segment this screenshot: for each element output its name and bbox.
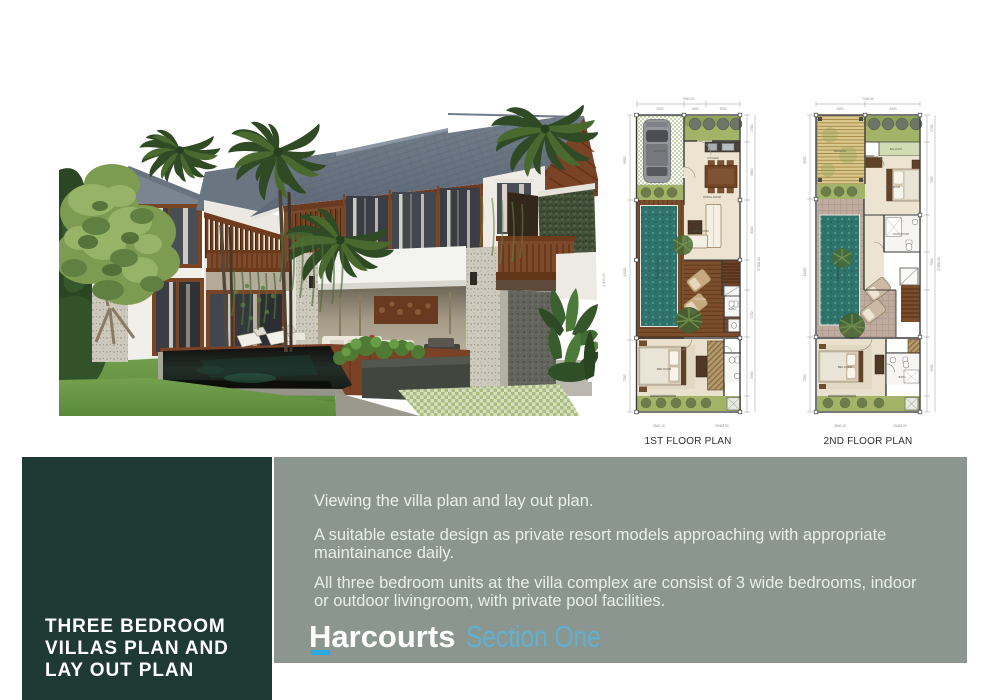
svg-text:SWIMMING POOL: SWIMMING POOL <box>656 257 660 279</box>
svg-text:2700: 2700 <box>930 124 934 131</box>
svg-text:29453.90: 29453.90 <box>715 424 729 428</box>
svg-text:5900: 5900 <box>750 371 754 378</box>
svg-text:TERRACE: TERRACE <box>694 297 707 301</box>
svg-text:3000: 3000 <box>656 107 663 111</box>
svg-text:7300: 7300 <box>930 176 934 183</box>
svg-text:BALCONY: BALCONY <box>890 147 903 151</box>
svg-text:7000.00: 7000.00 <box>862 97 874 101</box>
svg-text:2700: 2700 <box>750 124 754 131</box>
svg-text:5900: 5900 <box>930 364 934 371</box>
svg-text:29453.90: 29453.90 <box>893 424 907 428</box>
svg-text:BED ROOM: BED ROOM <box>838 365 852 369</box>
svg-text:KITCHEN: KITCHEN <box>707 156 719 160</box>
svg-text:6000: 6000 <box>750 226 754 233</box>
svg-text:BATH: BATH <box>729 307 736 311</box>
svg-text:27000.00: 27000.00 <box>937 257 941 271</box>
svg-text:27000.00: 27000.00 <box>757 257 761 271</box>
svg-text:3540.10: 3540.10 <box>834 424 846 428</box>
svg-text:DINING ROOM: DINING ROOM <box>703 195 721 199</box>
svg-text:CAR PORT: CAR PORT <box>653 149 667 153</box>
svg-text:7500: 7500 <box>930 258 934 265</box>
svg-text:8500: 8500 <box>623 156 627 163</box>
svg-text:BATH ROOM: BATH ROOM <box>893 232 909 236</box>
svg-text:PERGOLA: PERGOLA <box>834 149 847 153</box>
svg-text:4200: 4200 <box>889 107 896 111</box>
svg-text:8500: 8500 <box>803 156 807 163</box>
svg-text:7200: 7200 <box>623 374 627 381</box>
svg-text:LIVING ROOM: LIVING ROOM <box>691 229 708 233</box>
svg-text:14000: 14000 <box>803 267 807 276</box>
svg-text:BATH: BATH <box>899 375 906 379</box>
svg-text:4700: 4700 <box>750 311 754 318</box>
svg-text:7200: 7200 <box>803 374 807 381</box>
svg-text:BED ROOM: BED ROOM <box>886 185 900 189</box>
svg-text:1500: 1500 <box>691 107 698 111</box>
svg-text:2500: 2500 <box>836 107 843 111</box>
svg-text:14000: 14000 <box>623 267 627 276</box>
svg-text:BED ROOM: BED ROOM <box>657 367 671 371</box>
svg-text:3540.10: 3540.10 <box>653 424 665 428</box>
svg-text:3000: 3000 <box>719 107 726 111</box>
svg-text:5800: 5800 <box>750 168 754 175</box>
svg-text:7000.00: 7000.00 <box>682 97 694 101</box>
svg-text:SWIMMING POOL: SWIMMING POOL <box>836 259 840 281</box>
